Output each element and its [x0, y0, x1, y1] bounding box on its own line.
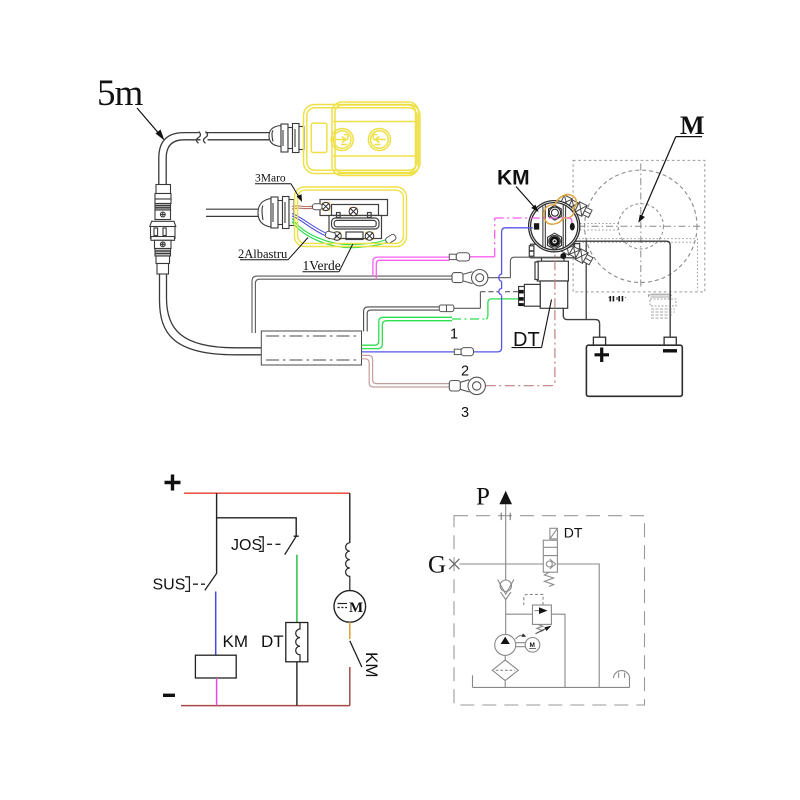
svg-text:F▒▒▒▒▒▒▒*: F▒▒▒▒▒▒▒* — [648, 293, 672, 298]
svg-text:5m: 5m — [97, 73, 144, 114]
svg-text:KM: KM — [497, 167, 530, 190]
svg-text:M: M — [530, 642, 535, 649]
svg-text:DT: DT — [261, 632, 284, 651]
svg-text:“▌▌8▌▌”: “▌▌8▌▌” — [608, 295, 627, 302]
svg-text:DT: DT — [564, 524, 583, 540]
svg-text:1Verde: 1Verde — [303, 258, 341, 273]
svg-text:P: P — [476, 484, 490, 511]
svg-text:JOS: JOS — [231, 537, 262, 554]
svg-text:1: 1 — [450, 327, 458, 343]
svg-text:SUS: SUS — [153, 577, 186, 594]
svg-text:M: M — [680, 111, 705, 140]
svg-text:3: 3 — [461, 405, 469, 421]
svg-text:KM: KM — [223, 632, 249, 651]
svg-text:KM: KM — [362, 652, 381, 678]
svg-text:3Maro: 3Maro — [255, 173, 286, 185]
svg-text:2: 2 — [461, 364, 469, 380]
svg-text:G: G — [428, 552, 446, 579]
svg-text:M: M — [349, 600, 363, 616]
svg-text:2Albastru: 2Albastru — [238, 247, 288, 261]
